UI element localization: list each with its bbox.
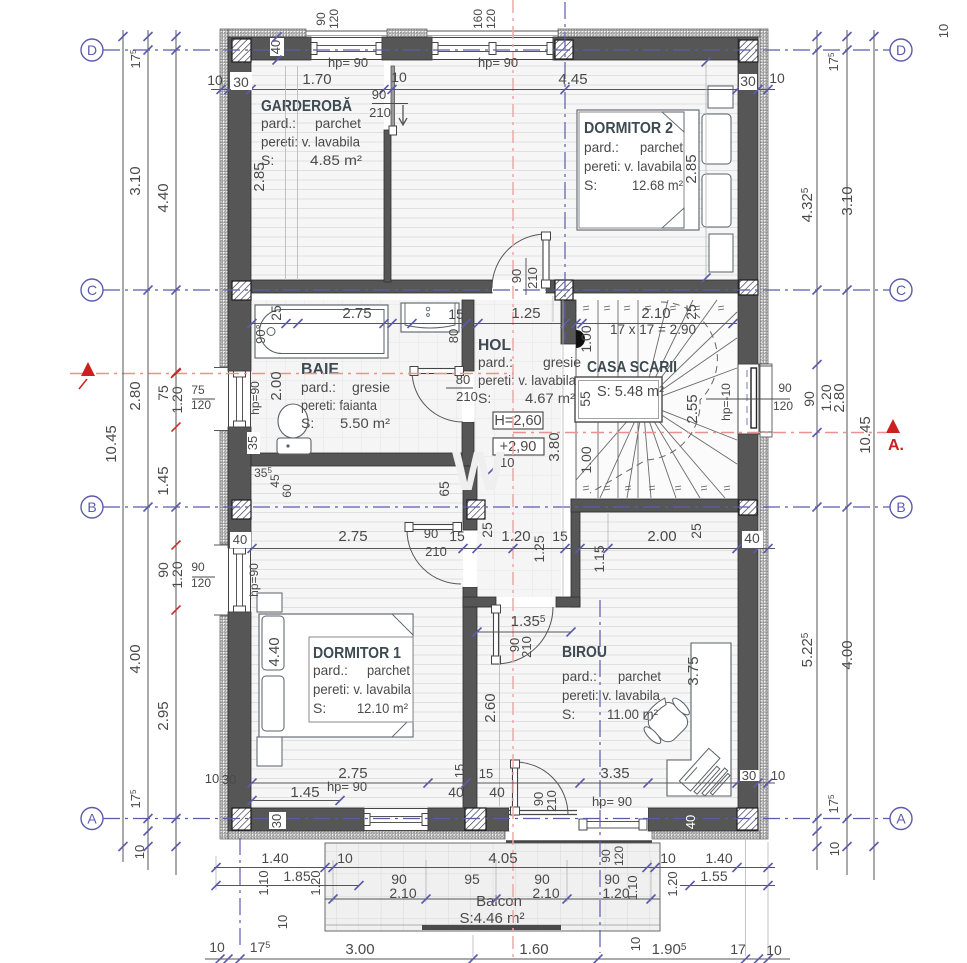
svg-text:120: 120 — [612, 846, 626, 866]
svg-text:160: 160 — [471, 9, 485, 29]
svg-text:pereti: v. lavabila: pereti: v. lavabila — [313, 681, 411, 697]
svg-text:pard.:: pard.: — [313, 662, 348, 678]
svg-text:30: 30 — [269, 814, 284, 828]
svg-text:90: 90 — [372, 87, 386, 102]
svg-text:DORMITOR 1: DORMITOR 1 — [313, 645, 401, 662]
svg-text:parchet: parchet — [640, 139, 683, 155]
svg-text:2.85: 2.85 — [683, 154, 700, 183]
svg-text:10: 10 — [771, 768, 785, 783]
svg-text:30: 30 — [740, 73, 756, 89]
svg-text:10: 10 — [207, 72, 223, 88]
svg-text:30: 30 — [233, 74, 249, 90]
svg-text:hp= 90: hp= 90 — [592, 794, 632, 809]
svg-text:pard.:: pard.: — [562, 668, 597, 684]
svg-text:CASA SCARII: CASA SCARII — [587, 359, 677, 376]
svg-text:90: 90 — [599, 849, 613, 863]
svg-text:3.75: 3.75 — [685, 656, 702, 685]
svg-text:hp= 90: hp= 90 — [478, 55, 518, 70]
svg-text:90: 90 — [314, 12, 328, 26]
svg-text:11.00 m²: 11.00 m² — [607, 706, 658, 722]
svg-text:1.20: 1.20 — [665, 871, 680, 896]
svg-text:1.10: 1.10 — [256, 870, 271, 895]
svg-text:HOL: HOL — [478, 337, 511, 354]
svg-text:10: 10 — [766, 942, 782, 958]
svg-text:12.10 m²: 12.10 m² — [357, 700, 408, 716]
svg-text:175: 175 — [826, 52, 841, 71]
svg-text:parchet: parchet — [367, 662, 410, 678]
svg-text:80: 80 — [446, 329, 461, 343]
svg-text:10: 10 — [660, 850, 676, 866]
svg-text:25: 25 — [479, 522, 495, 538]
svg-text:DORMITOR 2: DORMITOR 2 — [584, 120, 673, 137]
svg-text:S:: S: — [478, 390, 491, 406]
svg-text:4.40: 4.40 — [266, 637, 283, 666]
svg-text:10: 10 — [132, 845, 147, 859]
svg-text:175: 175 — [826, 794, 841, 813]
svg-text:90°: 90° — [253, 324, 268, 344]
svg-text:3.10: 3.10 — [839, 186, 856, 215]
svg-text:60: 60 — [280, 484, 294, 498]
svg-text:S:: S: — [562, 706, 575, 722]
svg-text:S:: S: — [301, 415, 314, 431]
svg-text:10: 10 — [275, 915, 290, 929]
svg-text:175: 175 — [250, 939, 271, 955]
svg-text:120: 120 — [191, 398, 211, 412]
svg-text:12.68 m²: 12.68 m² — [632, 177, 683, 193]
svg-text:210: 210 — [525, 267, 540, 289]
svg-text:pard.:: pard.: — [261, 115, 296, 131]
svg-text:+2,90: +2,90 — [500, 439, 537, 455]
svg-text:3.35: 3.35 — [600, 765, 629, 782]
svg-text:parchet: parchet — [618, 668, 661, 684]
svg-text:1.20: 1.20 — [169, 386, 185, 413]
svg-text:10: 10 — [205, 771, 219, 786]
svg-text:pereti: v. lavabila: pereti: v. lavabila — [584, 158, 682, 174]
svg-text:55: 55 — [577, 391, 593, 407]
svg-text:parchet: parchet — [315, 115, 361, 131]
svg-text:1.70: 1.70 — [302, 71, 331, 88]
svg-text:pereti: v. lavabila: pereti: v. lavabila — [562, 687, 660, 703]
svg-text:S:: S: — [584, 177, 597, 193]
svg-text:2.55: 2.55 — [684, 394, 701, 423]
svg-text:175: 175 — [128, 789, 143, 808]
svg-text:gresie: gresie — [352, 379, 390, 395]
svg-text:hp= 90: hp= 90 — [328, 55, 368, 70]
svg-text:hp=90: hp=90 — [248, 381, 262, 415]
svg-text:10: 10 — [936, 24, 951, 38]
svg-text:1.905: 1.905 — [652, 941, 687, 958]
svg-text:2.00: 2.00 — [647, 528, 676, 545]
svg-text:BAIE: BAIE — [301, 361, 339, 378]
svg-text:1.25: 1.25 — [531, 535, 547, 562]
svg-text:1.10: 1.10 — [625, 875, 640, 900]
svg-text:1.00: 1.00 — [578, 446, 594, 473]
svg-text:2.00: 2.00 — [268, 371, 285, 400]
svg-text:210: 210 — [425, 544, 447, 559]
svg-text:210: 210 — [369, 105, 391, 120]
svg-text:4.85 m²: 4.85 m² — [310, 152, 362, 168]
svg-text:2.75: 2.75 — [342, 305, 371, 322]
svg-text:A: A — [87, 811, 97, 827]
svg-text:1.40: 1.40 — [705, 850, 732, 866]
svg-text:65: 65 — [436, 481, 452, 497]
svg-text:17: 17 — [730, 941, 746, 957]
svg-text:1.20: 1.20 — [501, 528, 530, 545]
svg-text:H=2,60: H=2,60 — [494, 413, 541, 429]
svg-text:4.40: 4.40 — [155, 183, 172, 212]
svg-text:25: 25 — [683, 304, 699, 320]
svg-text:1.40: 1.40 — [261, 850, 288, 866]
svg-text:120: 120 — [484, 9, 498, 29]
svg-text:S: 5.48 m²: S: 5.48 m² — [597, 384, 664, 400]
svg-text:5.50 m²: 5.50 m² — [340, 415, 390, 431]
svg-text:2.80: 2.80 — [127, 381, 144, 410]
svg-text:2.10: 2.10 — [389, 885, 416, 901]
svg-text:10.45: 10.45 — [103, 425, 120, 463]
svg-text:2.60: 2.60 — [482, 693, 499, 722]
svg-text:10: 10 — [628, 937, 643, 951]
svg-text:S:: S: — [313, 700, 326, 716]
svg-text:B: B — [896, 499, 905, 515]
svg-text:1.15: 1.15 — [591, 545, 607, 572]
svg-text:gresie: gresie — [543, 354, 581, 370]
svg-text:1.20: 1.20 — [308, 870, 323, 895]
svg-text:35: 35 — [245, 436, 260, 450]
svg-text:120: 120 — [327, 9, 341, 29]
svg-text:3.00: 3.00 — [345, 941, 374, 958]
svg-text:10: 10 — [209, 939, 225, 955]
svg-text:C: C — [896, 282, 906, 298]
svg-text:pereti: faianta: pereti: faianta — [301, 397, 377, 413]
svg-text:hp=90: hp=90 — [247, 563, 261, 597]
svg-text:175: 175 — [128, 49, 143, 68]
svg-text:1.45: 1.45 — [290, 784, 319, 801]
svg-text:1.25: 1.25 — [511, 305, 540, 322]
svg-text:4.00: 4.00 — [839, 640, 856, 669]
svg-text:1.20: 1.20 — [169, 561, 185, 588]
svg-text:30: 30 — [742, 768, 756, 783]
svg-text:40: 40 — [683, 815, 698, 829]
svg-text:4.45: 4.45 — [558, 71, 587, 88]
svg-text:pard.:: pard.: — [584, 139, 619, 155]
svg-text:3.10: 3.10 — [127, 166, 144, 195]
svg-text:2.85: 2.85 — [251, 162, 268, 191]
svg-text:1.45: 1.45 — [155, 466, 172, 495]
svg-text:4.00: 4.00 — [127, 644, 144, 673]
svg-text:2.10: 2.10 — [532, 885, 559, 901]
svg-text:pereti: v. lavabila: pereti: v. lavabila — [478, 372, 576, 388]
svg-text:W: W — [452, 439, 505, 502]
svg-text:5.225: 5.225 — [799, 632, 816, 667]
svg-text:25: 25 — [688, 523, 704, 539]
svg-text:1.55: 1.55 — [700, 868, 727, 884]
svg-text:15: 15 — [452, 764, 467, 778]
svg-text:90: 90 — [778, 381, 792, 395]
svg-text:B: B — [87, 499, 96, 515]
svg-text:15: 15 — [552, 528, 568, 544]
svg-text:40: 40 — [744, 530, 760, 546]
svg-text:10: 10 — [391, 69, 407, 85]
svg-text:15: 15 — [448, 306, 464, 322]
svg-text:pereti: v. lavabila: pereti: v. lavabila — [261, 134, 360, 150]
svg-text:90: 90 — [509, 269, 524, 283]
svg-text:A: A — [896, 811, 906, 827]
svg-text:4.67 m²: 4.67 m² — [525, 390, 575, 406]
svg-text:1.00: 1.00 — [578, 325, 594, 352]
svg-text:2.75: 2.75 — [338, 528, 367, 545]
svg-text:40: 40 — [233, 532, 247, 547]
svg-text:210: 210 — [544, 790, 559, 812]
svg-text:40: 40 — [268, 40, 283, 54]
svg-text:30: 30 — [222, 772, 236, 787]
svg-text:90: 90 — [424, 526, 438, 541]
svg-text:C: C — [87, 282, 97, 298]
svg-text:17 x 17 = 2.90: 17 x 17 = 2.90 — [610, 322, 696, 337]
svg-text:80: 80 — [456, 372, 470, 387]
svg-text:210: 210 — [456, 389, 478, 404]
svg-text:pard.:: pard.: — [478, 354, 513, 370]
svg-text:40: 40 — [489, 784, 505, 800]
svg-text:A.: A. — [888, 437, 904, 454]
svg-text:2.95: 2.95 — [155, 701, 172, 730]
svg-text:95: 95 — [464, 871, 480, 887]
svg-text:40: 40 — [448, 784, 464, 800]
svg-text:D: D — [896, 42, 906, 58]
svg-text:2.10: 2.10 — [641, 305, 670, 322]
svg-text:25: 25 — [268, 305, 284, 321]
svg-text:15: 15 — [449, 528, 465, 544]
svg-text:hp=-10: hp=-10 — [719, 383, 733, 421]
svg-text:3.80: 3.80 — [546, 432, 563, 461]
svg-text:90: 90 — [801, 391, 817, 407]
svg-text:120: 120 — [191, 576, 211, 590]
svg-text:S:4.46 m²: S:4.46 m² — [459, 910, 524, 927]
svg-text:GARDEROBĂ: GARDEROBĂ — [261, 98, 352, 115]
svg-text:120: 120 — [773, 399, 793, 413]
svg-text:1.60: 1.60 — [519, 941, 548, 958]
svg-text:10.45: 10.45 — [857, 416, 874, 454]
svg-text:D: D — [87, 42, 97, 58]
svg-text:10: 10 — [337, 850, 353, 866]
svg-text:10: 10 — [769, 70, 785, 86]
svg-text:4.05: 4.05 — [488, 850, 517, 867]
svg-text:90: 90 — [191, 560, 205, 574]
svg-text:75: 75 — [191, 383, 205, 397]
svg-text:pard.:: pard.: — [301, 379, 336, 395]
svg-text:2.80: 2.80 — [831, 383, 848, 412]
svg-text:hp= 90: hp= 90 — [327, 779, 367, 794]
svg-text:4.325: 4.325 — [799, 187, 816, 222]
svg-text:10: 10 — [827, 842, 842, 856]
svg-text:1.85: 1.85 — [283, 868, 310, 884]
svg-text:15: 15 — [479, 766, 493, 781]
svg-text:210: 210 — [519, 636, 534, 658]
